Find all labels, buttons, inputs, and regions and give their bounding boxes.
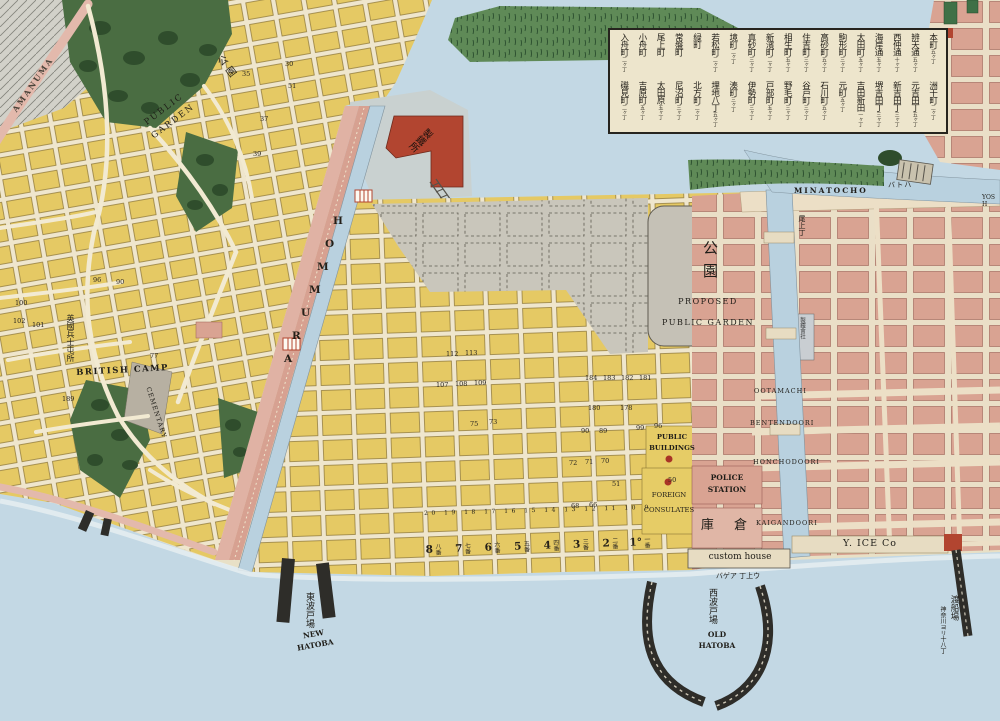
public-buildings-label: PUBLIC BUILDINGS — [648, 432, 696, 454]
town-name: 常盤町 — [674, 33, 683, 56]
town-chome-count: 五ヶ丁 — [912, 57, 917, 72]
town-chome-count: 五ヶ丁 — [930, 49, 935, 64]
foreign-consulates-label: FOREIGN CONSULATES — [638, 488, 700, 518]
town-name: 尾上町 — [656, 33, 665, 56]
town-name: 住吉町 — [801, 33, 810, 56]
numbered-lot: 4 四番 — [535, 527, 566, 564]
town-chome-count: 三ヶ丁 — [730, 97, 735, 112]
town-chome-count: 五ヶ丁 — [857, 57, 862, 72]
legend-column: 元町 五ヶ丁 — [833, 81, 850, 129]
town-chome-count: 二ヶ丁 — [694, 105, 699, 120]
legend-row-1: 本町 五ヶ丁 辨天通 五ヶ丁 西仲通 十ヶ丁 海岸通 五ヶ丁 太田町 五ヶ丁 駒… — [615, 33, 941, 81]
numbered-lot: 8 八番 — [417, 531, 448, 568]
numbered-lot: 3 三番 — [565, 526, 596, 563]
legend-column: 小舟町 — [633, 33, 650, 81]
legend-column: 谷戸町 三ヶ丁 — [797, 81, 814, 129]
town-name: 堺吉田丁 — [874, 81, 883, 111]
town-chome-count: 五ヶ丁 — [639, 105, 644, 120]
town-chome-count: 五ヶ丁 — [712, 112, 717, 127]
legend-column: 磯見町 二ヶ丁 — [615, 81, 632, 129]
town-name: 元吉田丁 — [910, 81, 919, 111]
park-kouen-label: 公園 — [700, 240, 721, 286]
town-chome-count: 一ヶ丁 — [857, 112, 862, 127]
town-name: 磯見町 — [619, 81, 628, 104]
town-name: 西仲通 — [892, 33, 901, 56]
legend-column: 尼沼町 三ヶ丁 — [670, 81, 687, 129]
town-chome-count: 三ヶ丁 — [875, 112, 880, 127]
town-chome-count: 五ヶ丁 — [875, 57, 880, 72]
lot-number-kanji: 七番 — [463, 542, 469, 554]
lot-number: 2 — [602, 537, 610, 549]
lot-number: 5 — [514, 541, 522, 553]
legend-column: 太田原 五ヶ丁 — [651, 81, 668, 129]
town-name: 伊勢町 — [746, 81, 755, 104]
lot-number-kanji: 六番 — [493, 541, 499, 553]
legend-column: 伊勢町 三ヶ丁 — [742, 81, 759, 129]
town-name: 元町 — [837, 81, 846, 96]
onoecho-label: 尾上丁 — [797, 215, 807, 236]
canal-bridge — [764, 232, 794, 243]
town-chome-count: 二ヶ丁 — [621, 57, 626, 72]
town-name: 戸部町 — [765, 81, 774, 104]
town-chome-count: 二ヶ丁 — [712, 57, 717, 72]
town-name: 相生町 — [783, 33, 792, 56]
town-chome-count: 三ヶ丁 — [676, 105, 681, 120]
legend-column: 湊町 三ヶ丁 — [724, 81, 741, 129]
police-station-label: POLICE STATION — [694, 472, 760, 496]
legend-column: 太田町 五ヶ丁 — [851, 33, 868, 81]
town-name: 洲干町 — [928, 81, 937, 104]
lot-number-kanji: 四番 — [552, 539, 558, 551]
lot-number: 4 — [543, 539, 551, 551]
warehouse-label: 庫 倉 — [698, 514, 758, 533]
lot-number: 6 — [484, 542, 492, 554]
town-chome-count: 三ヶ丁 — [803, 57, 808, 72]
legend-column: 住吉町 三ヶ丁 — [797, 33, 814, 81]
legend-column: 海岸通 五ヶ丁 — [869, 33, 886, 81]
town-chome-count: 三ヶ丁 — [785, 105, 790, 120]
town-names-legend: 本町 五ヶ丁 辨天通 五ヶ丁 西仲通 十ヶ丁 海岸通 五ヶ丁 太田町 五ヶ丁 駒… — [608, 28, 948, 134]
legend-column: 吉原町 五ヶ丁 — [633, 81, 650, 129]
town-name: 尼沼町 — [674, 81, 683, 104]
town-name: 湊町 — [728, 81, 737, 96]
town-name: 新濱町 — [765, 33, 774, 56]
town-name: 谷戸町 — [801, 81, 810, 104]
yokohama-antique-map: AMANUMA PUBLIC GARDEN 公園 公園 PROPOSED PUB… — [0, 0, 1000, 721]
new-hatoba-jp-label: 東波戸場 — [303, 592, 316, 628]
numbered-lot: 1° 一番 — [624, 524, 655, 561]
old-hatoba-en-label: OLD HATOBA — [692, 630, 742, 651]
town-name: 太田原 — [656, 81, 665, 104]
town-name: 北方町 — [692, 81, 701, 104]
yosh-partial-label: YOSH — [982, 194, 1000, 208]
legend-column: 入舟町 二ヶ丁 — [615, 33, 632, 81]
legend-column: 真砂町 三ヶ丁 — [742, 33, 759, 81]
canal-bridge — [766, 328, 796, 339]
legend-column: 辨天通 五ヶ丁 — [906, 33, 923, 81]
legend-column: 石川町 五ヶ丁 — [815, 81, 832, 129]
legend-column: 埋地八丁 五ヶ丁 — [706, 81, 723, 129]
town-name: 新吉田丁 — [892, 81, 901, 111]
town-name: 海岸通 — [874, 33, 883, 56]
town-name: 吉田新田 — [855, 81, 864, 111]
legend-column: 西仲通 十ヶ丁 — [888, 33, 905, 81]
legend-column: 本町 五ヶ丁 — [924, 33, 941, 81]
town-name: 太田町 — [855, 33, 864, 56]
town-name: 真砂町 — [746, 33, 755, 56]
ferry-label: 渡船場 — [948, 595, 960, 621]
town-chome-count: 二ヶ丁 — [621, 105, 626, 120]
ootamachi-label: OOTAMACHI — [754, 387, 807, 395]
town-name: 境町 — [728, 33, 737, 48]
town-name: 埋地八丁 — [710, 81, 719, 111]
numbered-lot: 2 二番 — [594, 525, 625, 562]
custom-house-kana-label: バゲア 丁上ウ — [688, 571, 788, 581]
lot-number: 3 — [573, 538, 581, 550]
legend-column: 洲干町 二ヶ丁 — [924, 81, 941, 129]
legend-column: 北方町 二ヶ丁 — [688, 81, 705, 129]
town-name: 石川町 — [819, 81, 828, 104]
numbered-lot: 7 七番 — [447, 530, 478, 567]
numbered-lot: 6 六番 — [476, 529, 507, 566]
park-proposed-label: PROPOSED PUBLIC GARDEN — [650, 292, 766, 334]
british-camp-jp-label: 英國兵士屯所 — [66, 314, 74, 362]
legend-column: 常盤町 — [670, 33, 687, 81]
town-chome-count: 二ヶ丁 — [930, 105, 935, 120]
lot-number-kanji: 三番 — [581, 538, 587, 550]
red-waterfront-block — [944, 534, 962, 551]
town-chome-count: 五ヶ丁 — [785, 57, 790, 72]
legend-column: 高砂町 五ヶ丁 — [815, 33, 832, 81]
honchodoori-label: HONCHODOORI — [753, 458, 820, 466]
town-chome-count: 五ヶ丁 — [766, 105, 771, 120]
town-chome-count: 三ヶ丁 — [748, 105, 753, 120]
town-name: 辨天通 — [910, 33, 919, 56]
lot-number: 8 — [425, 544, 433, 556]
old-hatoba-jp-label: 西波戸場 — [706, 588, 719, 624]
legend-column: 若松町 二ヶ丁 — [706, 33, 723, 81]
town-chome-count: 三ヶ丁 — [803, 105, 808, 120]
legend-column: 堺吉田丁 三ヶ丁 — [869, 81, 886, 129]
town-name: 野毛町 — [783, 81, 792, 104]
town-name: 入舟町 — [619, 33, 628, 56]
custom-house-label: custom house — [692, 552, 788, 562]
legend-column: 境町 二ヶ丁 — [724, 33, 741, 81]
legend-column: 吉田新田 一ヶ丁 — [851, 81, 868, 129]
numbered-lot: 5 五番 — [506, 528, 537, 565]
lot-number-kanji: 八番 — [434, 543, 440, 555]
town-chome-count: 二ヶ丁 — [730, 49, 735, 64]
legend-column: 相生町 五ヶ丁 — [779, 33, 796, 81]
minatocho-label: MINATOCHO — [794, 186, 868, 195]
town-chome-count: 二ヶ丁 — [766, 57, 771, 72]
public-buildings-dot — [666, 456, 673, 463]
legend-column: 尾上町 — [651, 33, 668, 81]
legend-column: 駒形町 三ヶ丁 — [833, 33, 850, 81]
town-chome-count: 三ヶ丁 — [839, 57, 844, 72]
legend-column: 新吉田丁 三ヶ丁 — [888, 81, 905, 129]
town-chome-count: 五ヶ丁 — [821, 57, 826, 72]
bentendoori-label: BENTENDOORI — [750, 419, 814, 427]
legend-column: 緑町 — [688, 33, 705, 81]
iron-company-label: 製鐵會社 — [798, 317, 806, 339]
town-name: 小舟町 — [637, 33, 646, 56]
town-name: 若松町 — [710, 33, 719, 56]
town-name: 本町 — [928, 33, 937, 48]
town-name: 駒形町 — [837, 33, 846, 56]
ferry-sub-label: 神奈川ヨリ十八丁 — [938, 606, 947, 654]
town-chome-count: 三ヶ丁 — [894, 112, 899, 127]
town-chome-count: 三ヶ丁 — [748, 57, 753, 72]
town-chome-count: 五ヶ丁 — [821, 105, 826, 120]
town-chome-count: 五ヶ丁 — [912, 112, 917, 127]
town-chome-count: 十ヶ丁 — [894, 57, 899, 72]
town-chome-count: 五ヶ丁 — [657, 105, 662, 120]
hatoba-kana-label: バトハ — [888, 180, 912, 190]
town-chome-count: 五ヶ丁 — [839, 97, 844, 112]
lot-number-kanji: 五番 — [522, 540, 528, 552]
lot-number-kanji: 二番 — [611, 537, 617, 549]
legend-column: 戸部町 五ヶ丁 — [760, 81, 777, 129]
legend-row-2: 洲干町 二ヶ丁 元吉田丁 五ヶ丁 新吉田丁 三ヶ丁 堺吉田丁 三ヶ丁 吉田新田 … — [615, 81, 941, 129]
kaigandoori-label: KAIGANDOORI — [756, 519, 818, 527]
legend-column: 新濱町 二ヶ丁 — [760, 33, 777, 81]
town-name: 緑町 — [692, 33, 701, 48]
lot-number-kanji: 一番 — [643, 536, 649, 548]
town-name: 高砂町 — [819, 33, 828, 56]
lot-number: 1° — [629, 536, 642, 548]
y-ice-label: Y. ICE Co — [800, 538, 940, 549]
lot-number: 7 — [455, 543, 463, 555]
foreign-consulates-dot — [665, 479, 672, 486]
legend-column: 野毛町 三ヶ丁 — [779, 81, 796, 129]
legend-column: 元吉田丁 五ヶ丁 — [906, 81, 923, 129]
town-name: 吉原町 — [637, 81, 646, 104]
